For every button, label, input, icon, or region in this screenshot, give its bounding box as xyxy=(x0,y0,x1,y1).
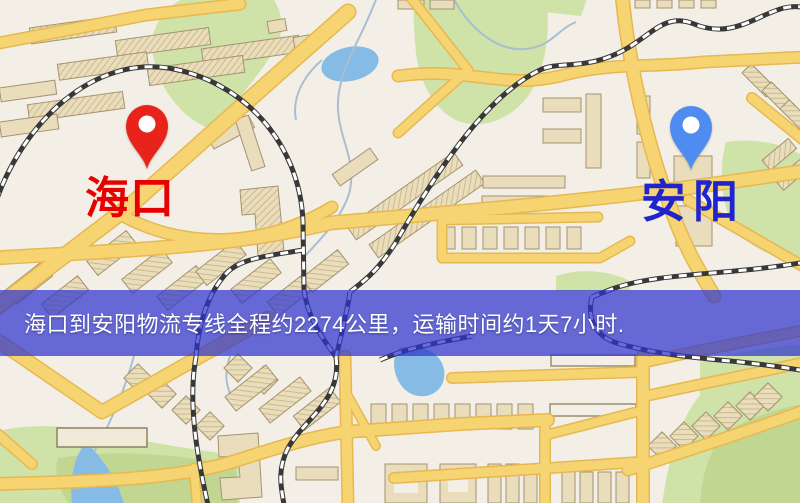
map-image xyxy=(0,0,800,503)
pin-hole xyxy=(139,116,156,133)
map-stage: 海口到安阳物流专线全程约2274公里，运输时间约1天7小时. 海口 安阳 xyxy=(0,0,800,503)
origin-pin-icon xyxy=(124,98,170,172)
destination-label: 安阳 xyxy=(641,179,745,224)
map-pin-icon xyxy=(126,105,168,169)
lake xyxy=(318,41,382,86)
pin-hole xyxy=(683,117,700,134)
origin-label: 海口 xyxy=(85,177,175,221)
route-info-text: 海口到安阳物流专线全程约2274公里，运输时间约1天7小时. xyxy=(24,307,625,339)
route-info-banner: 海口到安阳物流专线全程约2274公里，运输时间约1天7小时. xyxy=(0,290,800,356)
map-pin-icon xyxy=(670,106,712,170)
destination-pin-icon xyxy=(668,99,714,173)
